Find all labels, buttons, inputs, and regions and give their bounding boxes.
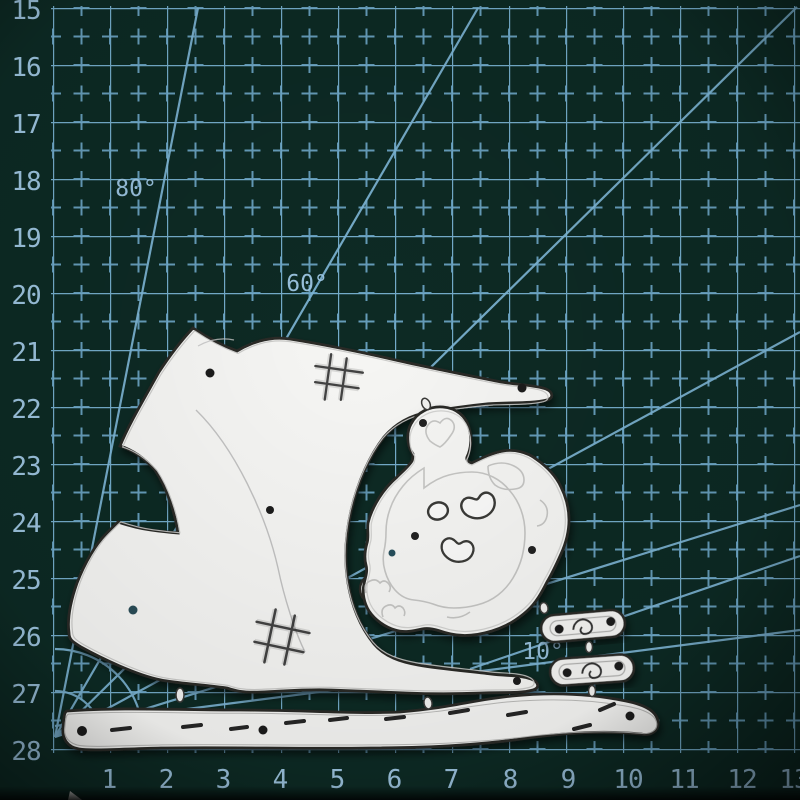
- photo-cutting-dies-on-mat: 15 16 17 18 19 20 21 22 23 24 25 26 27 2…: [0, 0, 800, 800]
- cutting-mat-photo: 15 16 17 18 19 20 21 22 23 24 25 26 27 2…: [0, 0, 800, 800]
- photo-vignette: [0, 0, 800, 800]
- mat-bottom-edge-shadow: [0, 786, 800, 800]
